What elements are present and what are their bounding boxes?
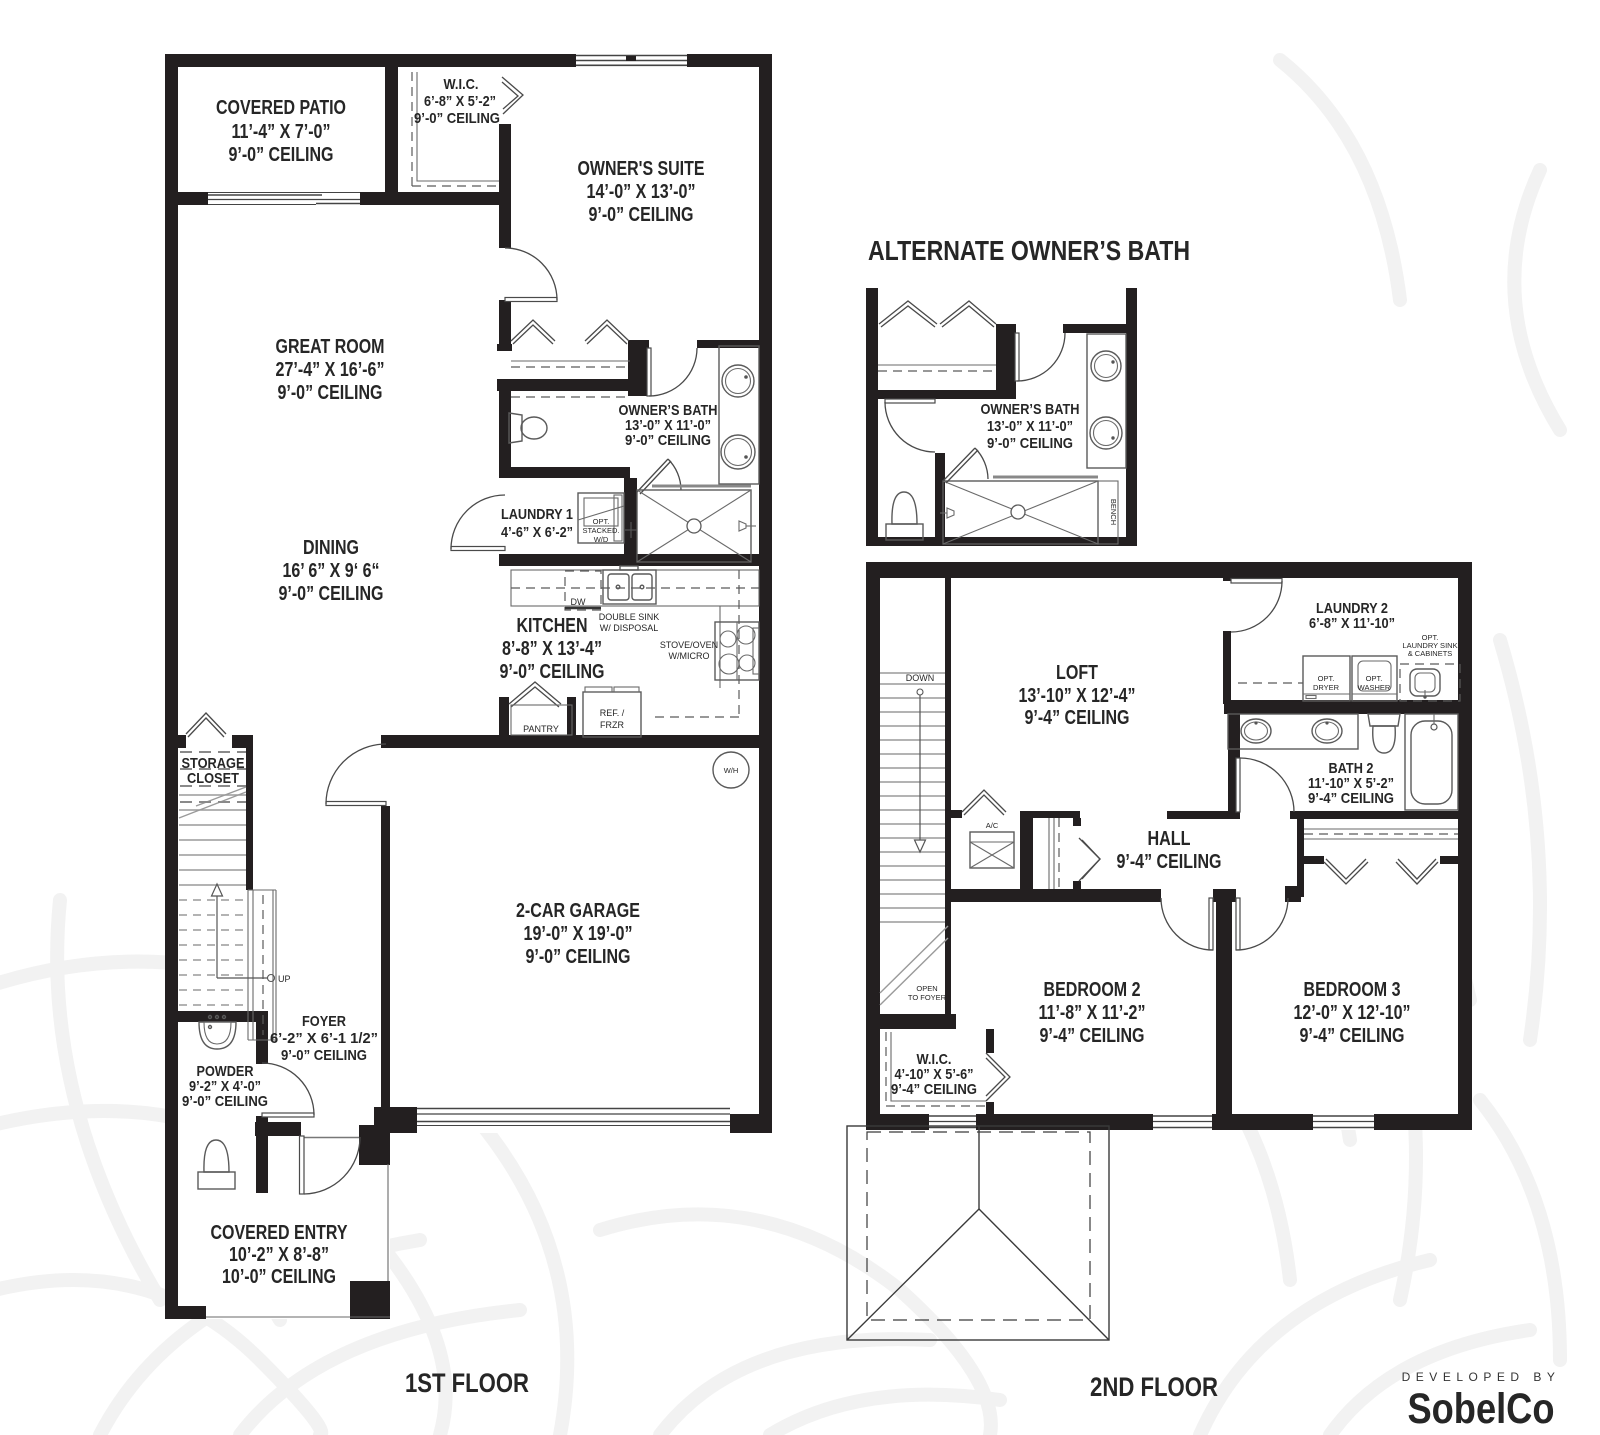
svg-text:2-CAR GARAGE: 2-CAR GARAGE [516,900,640,922]
svg-text:11’-8” X 11’-2”: 11’-8” X 11’-2” [1039,1002,1146,1024]
svg-text:9’-0” CEILING: 9’-0” CEILING [625,432,711,449]
svg-text:9’-0” CEILING: 9’-0” CEILING [526,946,631,968]
svg-text:8’-8” X 13’-4”: 8’-8” X 13’-4” [502,638,602,660]
svg-text:PANTRY: PANTRY [523,724,559,734]
svg-text:FRZR: FRZR [600,720,624,730]
svg-text:9’-0” CEILING: 9’-0” CEILING [414,110,500,127]
svg-text:WASHER: WASHER [1358,683,1391,692]
svg-text:KITCHEN: KITCHEN [517,615,588,637]
svg-text:10’-2” X 8’-8”: 10’-2” X 8’-8” [229,1244,329,1266]
svg-text:6’-8” X 5’-2”: 6’-8” X 5’-2” [424,93,496,110]
svg-text:6’-8” X 11’-10”: 6’-8” X 11’-10” [1309,615,1395,632]
svg-text:STACKED.: STACKED. [583,526,620,535]
svg-text:OPT.: OPT. [1318,674,1335,683]
svg-text:2ND FLOOR: 2ND FLOOR [1090,1372,1218,1402]
svg-text:DW: DW [571,597,586,607]
svg-text:9’-4” CEILING: 9’-4” CEILING [1025,707,1130,729]
svg-text:BENCH: BENCH [1109,499,1118,525]
svg-text:W/H: W/H [724,766,739,775]
svg-text:OWNER’S BATH: OWNER’S BATH [981,401,1080,418]
svg-text:STOVE/OVEN: STOVE/OVEN [660,640,718,650]
svg-text:16’ 6” X 9‘ 6“: 16’ 6” X 9‘ 6“ [283,560,380,582]
svg-text:9’-0” CEILING: 9’-0” CEILING [182,1093,268,1110]
svg-text:LAUNDRY 1: LAUNDRY 1 [501,506,573,523]
svg-text:DOUBLE SINK: DOUBLE SINK [599,612,660,622]
svg-text:9’-0” CEILING: 9’-0” CEILING [589,204,694,226]
svg-text:LOFT: LOFT [1056,662,1098,684]
svg-text:OPT.: OPT. [593,517,610,526]
svg-text:9’-4” CEILING: 9’-4” CEILING [1040,1025,1145,1047]
svg-text:10’-0” CEILING: 10’-0” CEILING [222,1266,336,1288]
svg-text:9’-0” CEILING: 9’-0” CEILING [281,1047,367,1064]
svg-text:TO FOYER: TO FOYER [908,993,947,1002]
svg-text:OWNER'S SUITE: OWNER'S SUITE [578,158,705,180]
svg-text:DEVELOPED BY: DEVELOPED BY [1402,1370,1561,1384]
svg-text:BEDROOM 2: BEDROOM 2 [1044,979,1141,1001]
svg-text:A/C: A/C [986,821,999,830]
svg-text:ALTERNATE OWNER’S BATH: ALTERNATE OWNER’S BATH [868,235,1190,266]
svg-text:14’-0” X 13’-0”: 14’-0” X 13’-0” [587,181,696,203]
svg-text:COVERED PATIO: COVERED PATIO [216,97,346,119]
svg-text:BEDROOM 3: BEDROOM 3 [1304,979,1401,1001]
svg-text:& CABINETS: & CABINETS [1408,649,1453,658]
svg-text:SobelCo: SobelCo [1408,1385,1555,1433]
svg-text:OPEN: OPEN [916,984,937,993]
svg-text:W.I.C.: W.I.C. [444,76,479,93]
svg-text:COVERED ENTRY: COVERED ENTRY [211,1222,349,1244]
svg-text:13’-10” X 12’-4”: 13’-10” X 12’-4” [1019,685,1136,707]
svg-text:GREAT ROOM: GREAT ROOM [276,336,385,358]
svg-text:W/D: W/D [594,535,609,544]
svg-text:UP: UP [278,974,291,984]
svg-text:9’-4” CEILING: 9’-4” CEILING [1117,851,1222,873]
svg-text:19’-0” X 19’-0”: 19’-0” X 19’-0” [524,923,633,945]
svg-text:27’-4” X 16’-6”: 27’-4” X 16’-6” [276,359,385,381]
svg-text:9’-4” CEILING: 9’-4” CEILING [891,1081,977,1098]
svg-text:9’-4” CEILING: 9’-4” CEILING [1308,790,1394,807]
svg-text:FOYER: FOYER [302,1013,346,1030]
svg-text:9’-0” CEILING: 9’-0” CEILING [278,382,383,404]
svg-text:9’-0” CEILING: 9’-0” CEILING [279,583,384,605]
svg-text:OPT.: OPT. [1366,674,1383,683]
svg-text:W/ DISPOSAL: W/ DISPOSAL [600,623,659,633]
svg-text:9’-0” CEILING: 9’-0” CEILING [229,144,334,166]
svg-text:HALL: HALL [1148,828,1191,850]
svg-text:DOWN: DOWN [906,673,935,683]
svg-text:REF. /: REF. / [600,708,625,718]
svg-text:CLOSET: CLOSET [187,770,239,787]
svg-text:11’-4” X 7’-0”: 11’-4” X 7’-0” [232,121,331,143]
svg-text:9’-0” CEILING: 9’-0” CEILING [500,661,605,683]
svg-text:W/MICRO: W/MICRO [669,651,710,661]
svg-text:9’-0” CEILING: 9’-0” CEILING [987,435,1073,452]
svg-text:12’-0” X 12’-10”: 12’-0” X 12’-10” [1294,1002,1411,1024]
svg-text:6’-2” X 6’-1 1/2”: 6’-2” X 6’-1 1/2” [270,1030,378,1047]
svg-text:4’-6” X 6’-2”: 4’-6” X 6’-2” [501,524,573,541]
svg-text:DRYER: DRYER [1313,683,1340,692]
svg-text:1ST FLOOR: 1ST FLOOR [405,1368,529,1398]
svg-text:13’-0” X 11’-0”: 13’-0” X 11’-0” [987,418,1073,435]
svg-text:DINING: DINING [303,537,359,559]
svg-text:9’-4” CEILING: 9’-4” CEILING [1300,1025,1405,1047]
